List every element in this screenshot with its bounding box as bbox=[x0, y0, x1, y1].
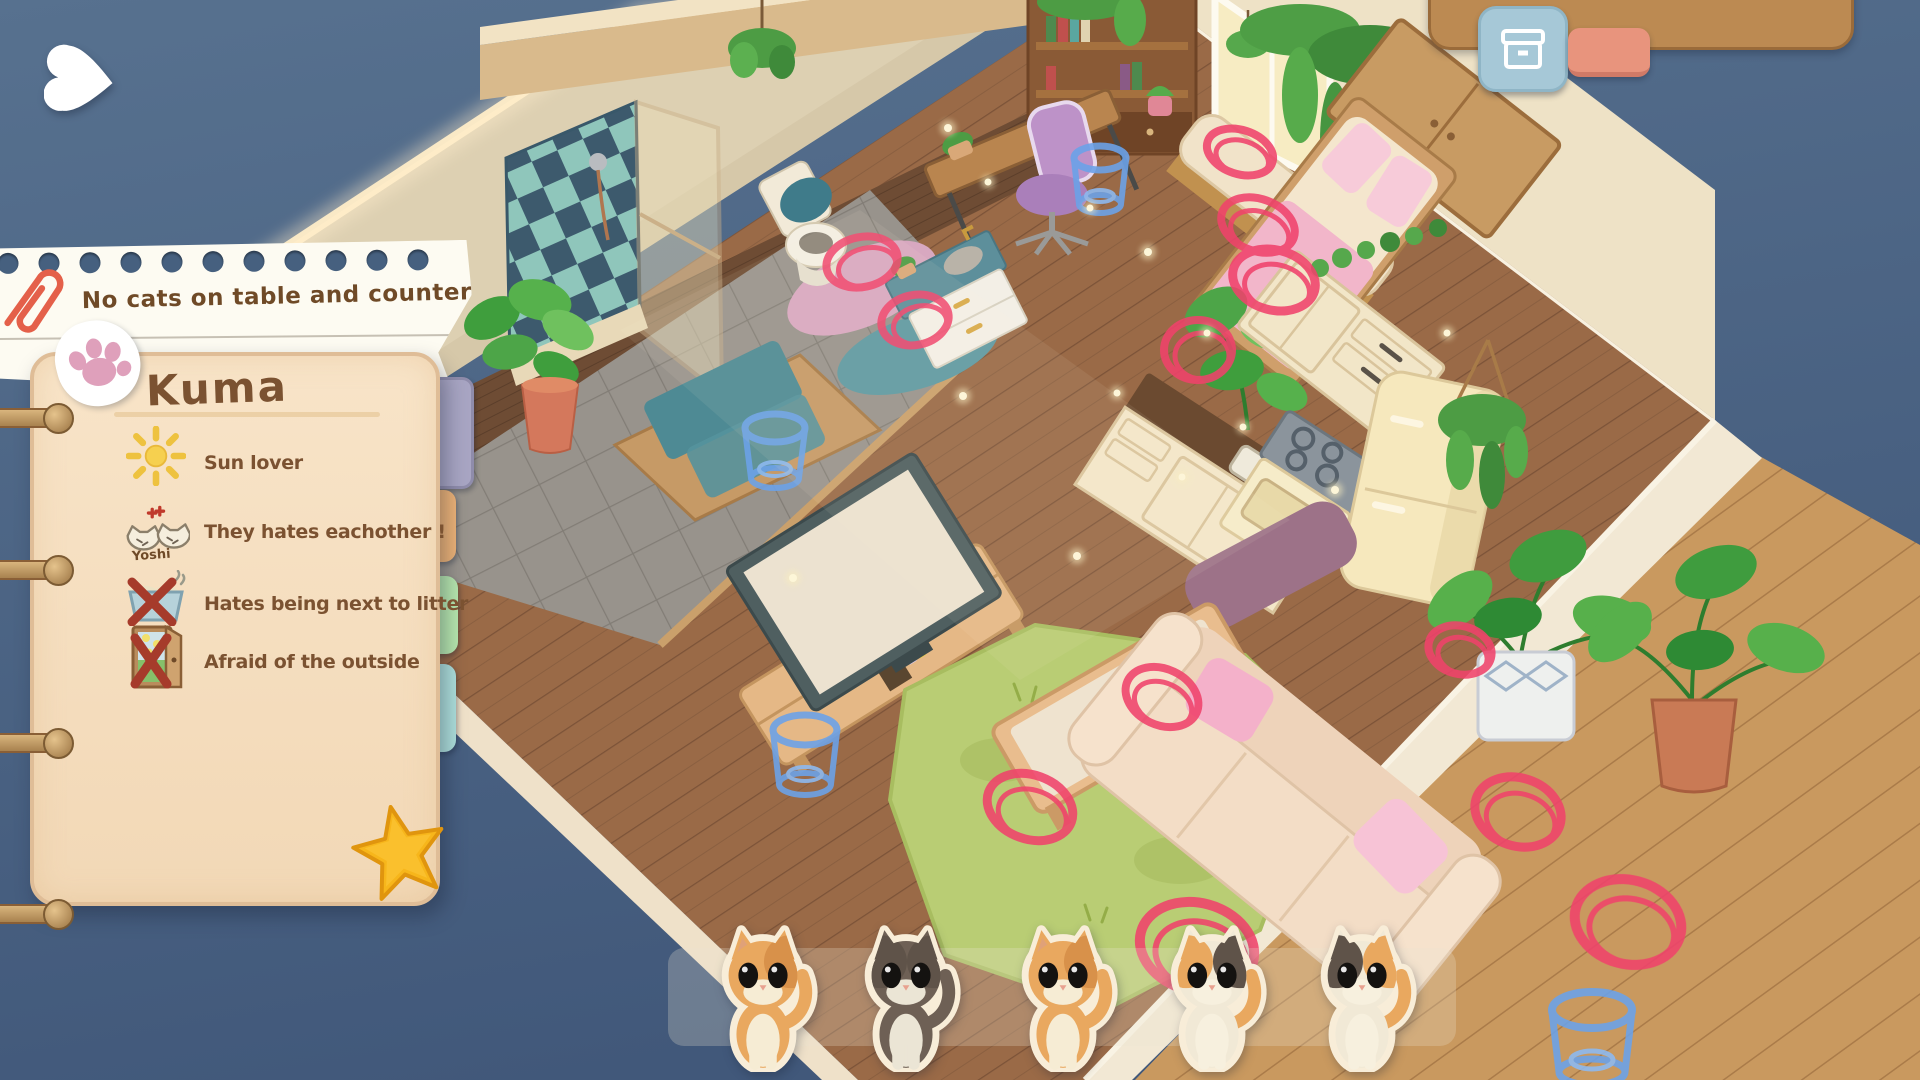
star-sticker bbox=[341, 793, 459, 910]
trait-label: Afraid of the outside bbox=[204, 651, 420, 673]
storage-box-icon bbox=[1499, 27, 1547, 71]
trait-label: Hates being next to litter bbox=[204, 593, 468, 615]
cat-name: Kuma bbox=[145, 362, 288, 416]
divider bbox=[114, 412, 380, 417]
back-button[interactable] bbox=[44, 36, 122, 124]
crossed-door-icon bbox=[122, 624, 190, 694]
trait-sub-label: Yoshi bbox=[132, 547, 172, 565]
binder-ring bbox=[0, 408, 68, 428]
game-screen: No cats on table and counters ! Kuma bbox=[0, 0, 1920, 1080]
sun-icon bbox=[122, 426, 190, 486]
cat-card-2[interactable] bbox=[847, 924, 965, 1076]
secondary-button[interactable] bbox=[1568, 28, 1650, 77]
cat-card-4[interactable] bbox=[1153, 924, 1271, 1076]
cat-card-1[interactable] bbox=[704, 924, 822, 1076]
cat-card-3[interactable] bbox=[1004, 924, 1122, 1076]
crossed-litter-box-icon bbox=[122, 570, 190, 626]
storage-button[interactable] bbox=[1478, 6, 1568, 92]
rule-note: No cats on table and counters ! bbox=[82, 279, 482, 314]
trait-label: Sun lover bbox=[204, 452, 303, 474]
cat-profile-card: Kuma Sun lover bbox=[30, 352, 440, 906]
binder-ring bbox=[0, 733, 68, 753]
paw-sticker bbox=[47, 311, 149, 415]
heart-back-icon bbox=[44, 36, 122, 124]
trait-label: They hates eachother ! bbox=[204, 521, 446, 543]
binder-ring bbox=[0, 904, 68, 924]
binder-ring bbox=[0, 560, 68, 580]
cat-card-5[interactable] bbox=[1303, 924, 1421, 1076]
